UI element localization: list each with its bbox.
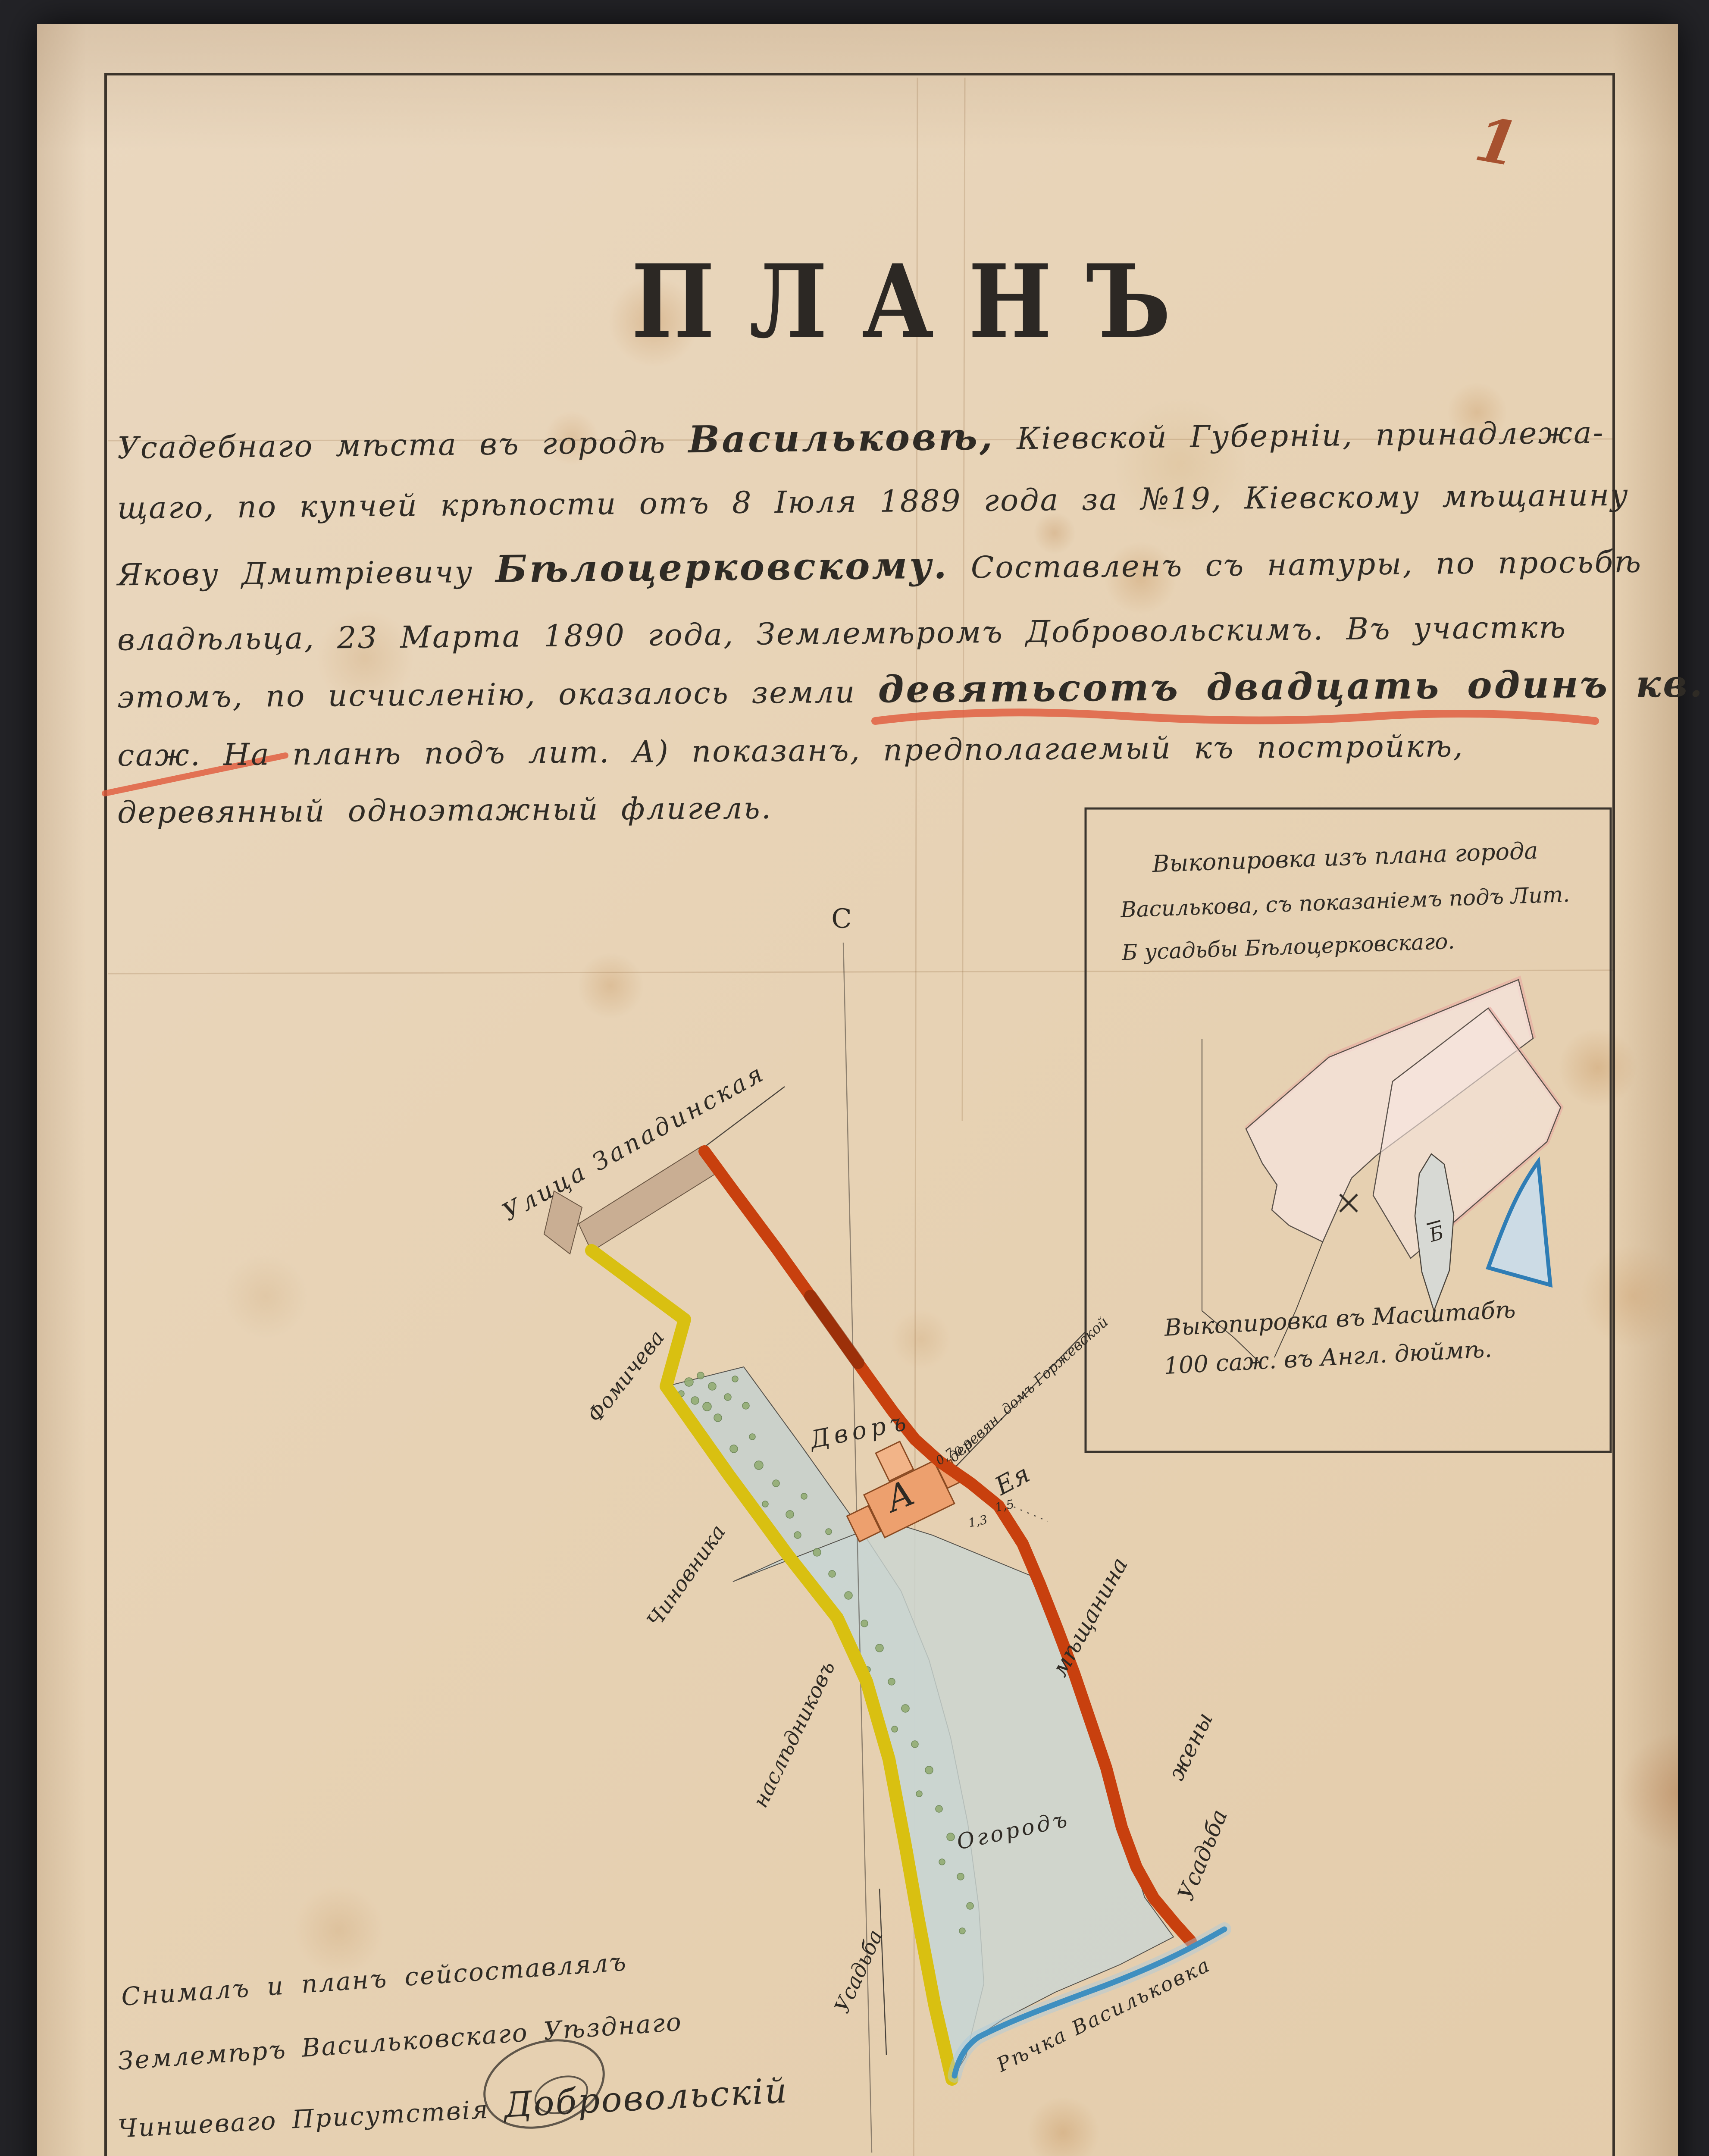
owner-surname: Бѣлоцерковскому. bbox=[495, 544, 949, 591]
intro-line-7: деревянный одноэтажный флигель. bbox=[117, 790, 773, 830]
intro-line-1-tail: Кіевской Губерніи, принадлежа- bbox=[994, 415, 1604, 457]
intro-line-3-tail: Составленъ съ натуры, по просьбѣ bbox=[948, 544, 1642, 586]
north-marker: С bbox=[831, 903, 851, 934]
area-value-underlined: девятьсотъ двадцать одинъ кв. bbox=[878, 662, 1705, 711]
town-name: Васильковѣ, bbox=[688, 415, 995, 461]
scanned-plan-document: 1 ПЛАНЪ Усадебнаго мѣста въ городѣ Васил… bbox=[0, 0, 1709, 2156]
page-title: ПЛАНЪ bbox=[617, 243, 1220, 361]
intro-line-5-text: этомъ, по исчисленію, оказалось земли bbox=[117, 674, 878, 715]
inset-x-label: х bbox=[1347, 1201, 1350, 1206]
intro-line-1-text: Усадебнаго мѣста въ городѣ bbox=[117, 424, 689, 466]
owner-first-names: Якову Дмитріевичу bbox=[117, 554, 496, 593]
